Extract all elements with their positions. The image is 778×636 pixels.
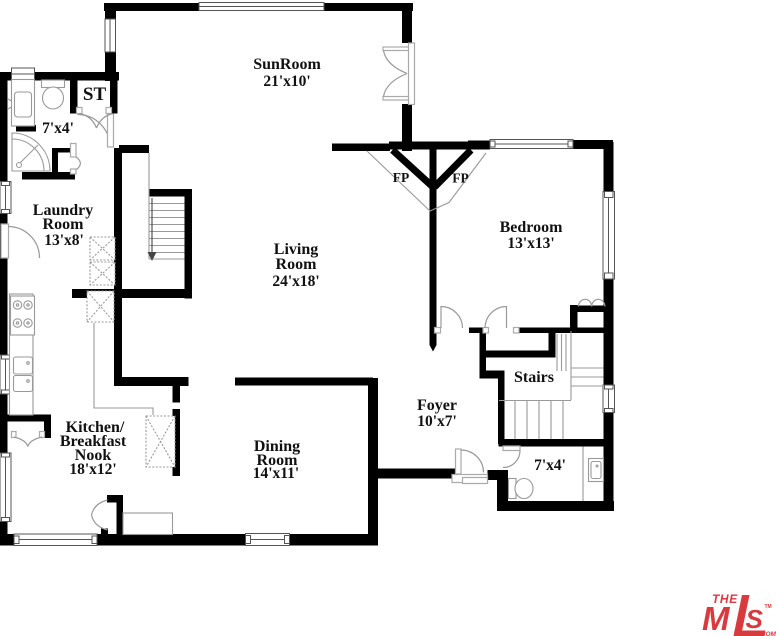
svg-text:Foyer: Foyer — [417, 397, 457, 414]
svg-text:18'x12': 18'x12' — [69, 461, 116, 478]
svg-text:7'x4': 7'x4' — [42, 120, 74, 137]
svg-text:7'x4': 7'x4' — [534, 457, 566, 474]
svg-text:10'x7': 10'x7' — [417, 413, 457, 430]
svg-text:ST: ST — [83, 84, 107, 105]
svg-text:S: S — [746, 604, 764, 634]
svg-text:M: M — [702, 600, 731, 636]
svg-text:Bedroom: Bedroom — [500, 219, 563, 236]
svg-text:.COM: .COM — [759, 631, 777, 636]
svg-text:Room: Room — [43, 216, 85, 233]
svg-text:FP: FP — [393, 170, 410, 185]
svg-text:SunRoom: SunRoom — [253, 56, 321, 73]
svg-text:TM: TM — [765, 604, 772, 610]
svg-text:13'x13': 13'x13' — [507, 235, 554, 252]
svg-text:13'x8': 13'x8' — [44, 232, 84, 249]
svg-text:Room: Room — [276, 256, 318, 273]
svg-text:FP: FP — [452, 171, 469, 186]
svg-text:Stairs: Stairs — [514, 369, 554, 386]
svg-text:24'x18': 24'x18' — [272, 273, 319, 290]
svg-text:14'x11': 14'x11' — [253, 465, 300, 482]
svg-text:21'x10': 21'x10' — [263, 73, 310, 90]
